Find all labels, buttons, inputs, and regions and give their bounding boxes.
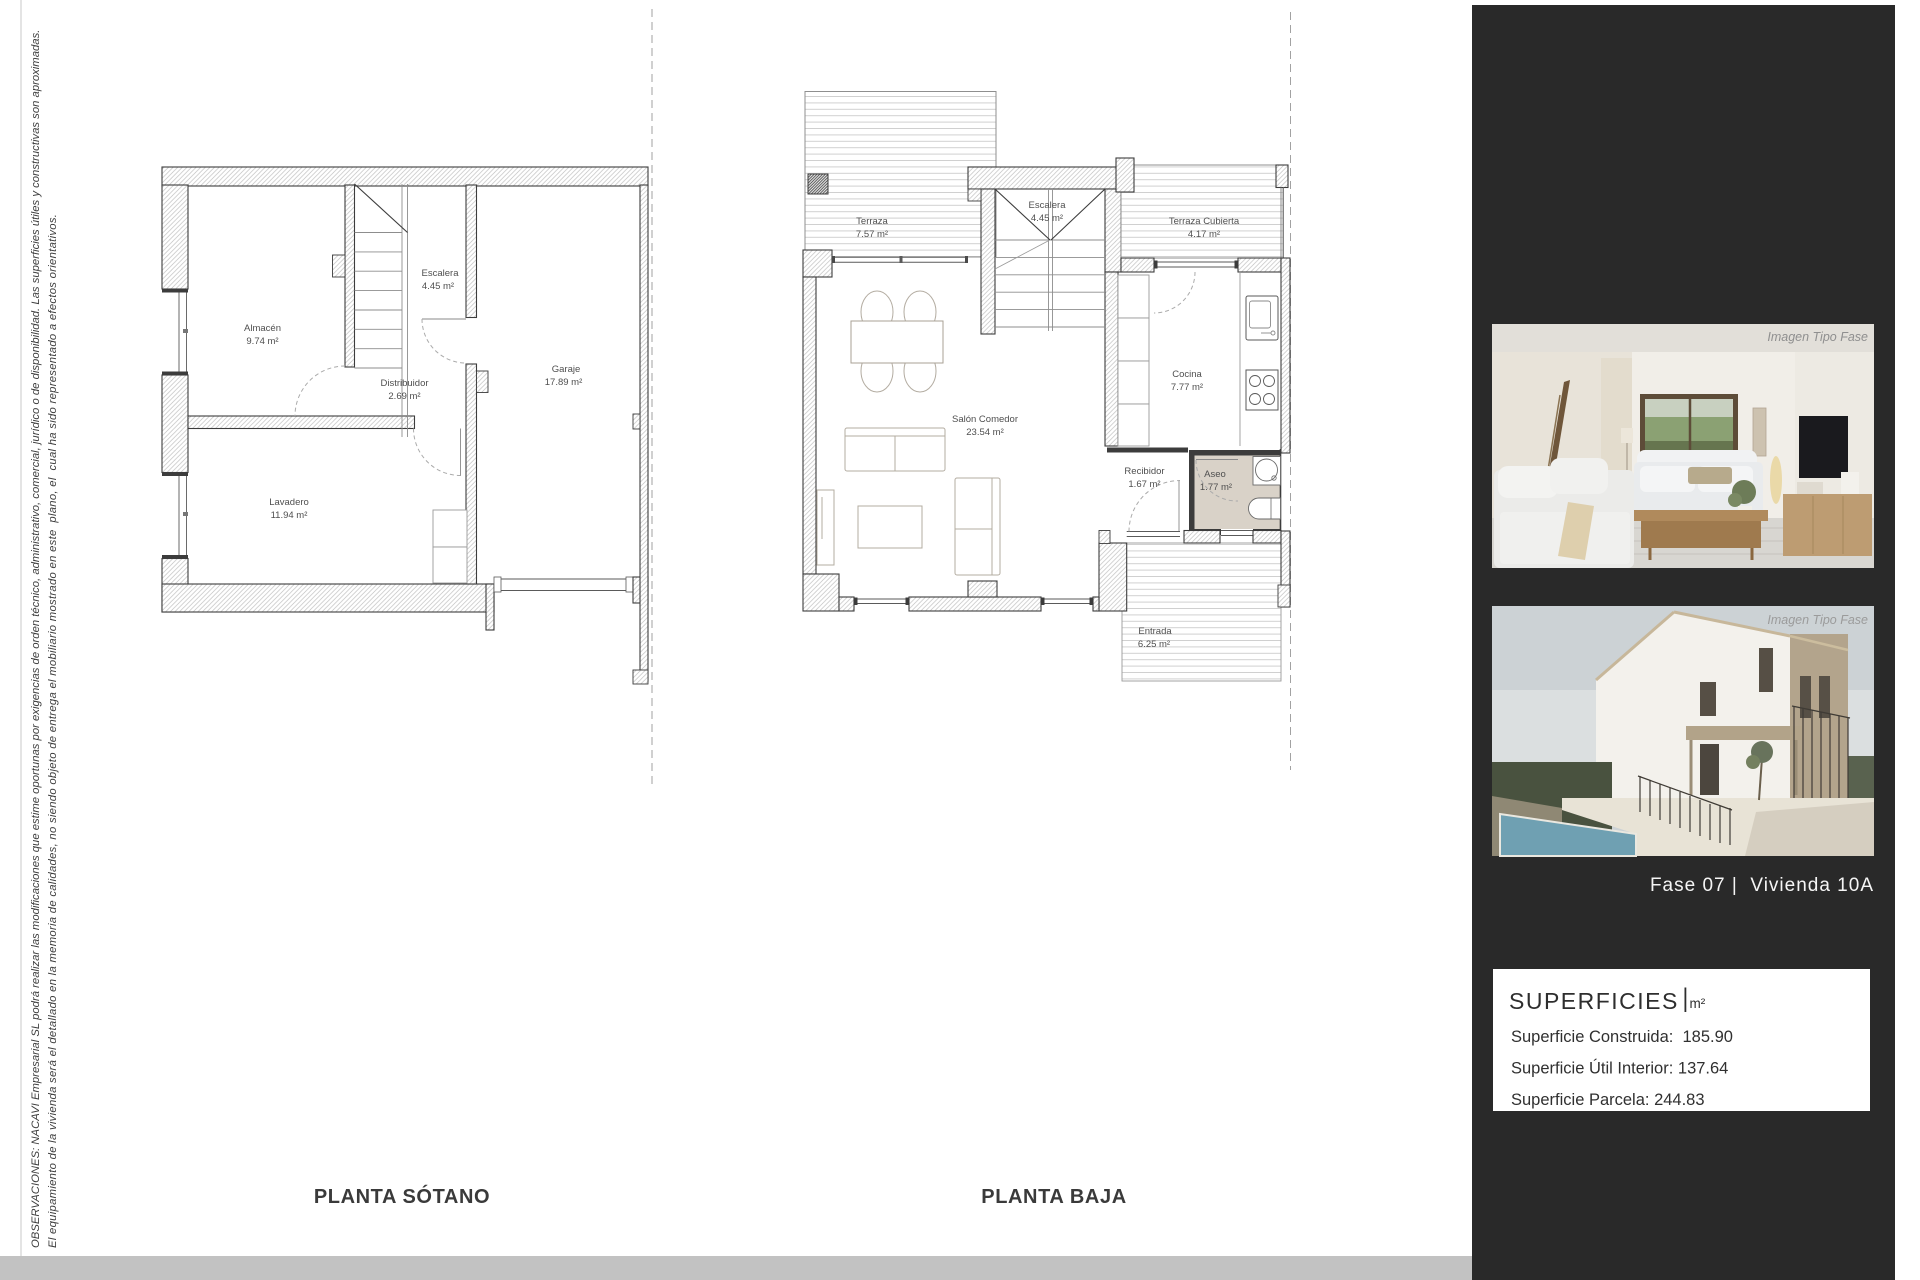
svg-text:Imagen Tipo Fase: Imagen Tipo Fase	[1767, 613, 1868, 627]
svg-text:Recibidor: Recibidor	[1124, 466, 1164, 477]
svg-text:Garaje: Garaje	[552, 364, 581, 375]
svg-text:Cocina: Cocina	[1172, 369, 1202, 380]
svg-text:PLANTA SÓTANO: PLANTA SÓTANO	[314, 1184, 490, 1208]
svg-text:m²: m²	[1690, 996, 1706, 1011]
svg-text:Imagen Tipo Fase: Imagen Tipo Fase	[1767, 330, 1868, 344]
svg-text:Superficie Útil Interior: 137.: Superficie Útil Interior: 137.64	[1511, 1059, 1728, 1078]
svg-text:17.89 m²: 17.89 m²	[545, 377, 583, 388]
svg-text:7.77 m²: 7.77 m²	[1171, 382, 1203, 393]
svg-text:1.67 m²: 1.67 m²	[1128, 479, 1160, 490]
svg-text:9.74 m²: 9.74 m²	[246, 336, 278, 347]
svg-text:Escalera: Escalera	[1029, 200, 1067, 211]
svg-text:Escalera: Escalera	[422, 268, 460, 279]
svg-text:Terraza Cubierta: Terraza Cubierta	[1169, 216, 1240, 227]
svg-text:Fase 07 | Vivienda 10A: Fase 07 | Vivienda 10A	[1650, 875, 1874, 896]
svg-text:SUPERFICIES: SUPERFICIES	[1509, 988, 1679, 1014]
svg-text:Superficie Parcela: 244.83: Superficie Parcela: 244.83	[1511, 1091, 1705, 1109]
svg-text:Lavadero: Lavadero	[269, 497, 309, 508]
svg-text:7.57 m²: 7.57 m²	[856, 229, 888, 240]
svg-text:23.54 m²: 23.54 m²	[966, 427, 1004, 438]
svg-text:Superficie Construida: 185.90: Superficie Construida: 185.90	[1511, 1028, 1733, 1046]
svg-text:4.17 m²: 4.17 m²	[1188, 229, 1220, 240]
svg-text:Salón Comedor: Salón Comedor	[952, 414, 1018, 425]
svg-text:4.45 m²: 4.45 m²	[422, 281, 454, 292]
svg-text:11.94 m²: 11.94 m²	[271, 510, 308, 521]
svg-text:Distribuidor: Distribuidor	[380, 378, 428, 389]
svg-text:Aseo: Aseo	[1204, 469, 1226, 480]
svg-text:6.25 m²: 6.25 m²	[1138, 639, 1170, 650]
svg-text:4.45 m²: 4.45 m²	[1031, 213, 1063, 224]
svg-text:PLANTA BAJA: PLANTA BAJA	[981, 1186, 1127, 1208]
svg-text:1.77 m²: 1.77 m²	[1200, 482, 1232, 493]
svg-text:Entrada: Entrada	[1138, 626, 1172, 637]
svg-text:Almacén: Almacén	[244, 323, 281, 334]
svg-text:Terraza: Terraza	[856, 216, 888, 227]
svg-text:2.69 m²: 2.69 m²	[388, 391, 420, 402]
